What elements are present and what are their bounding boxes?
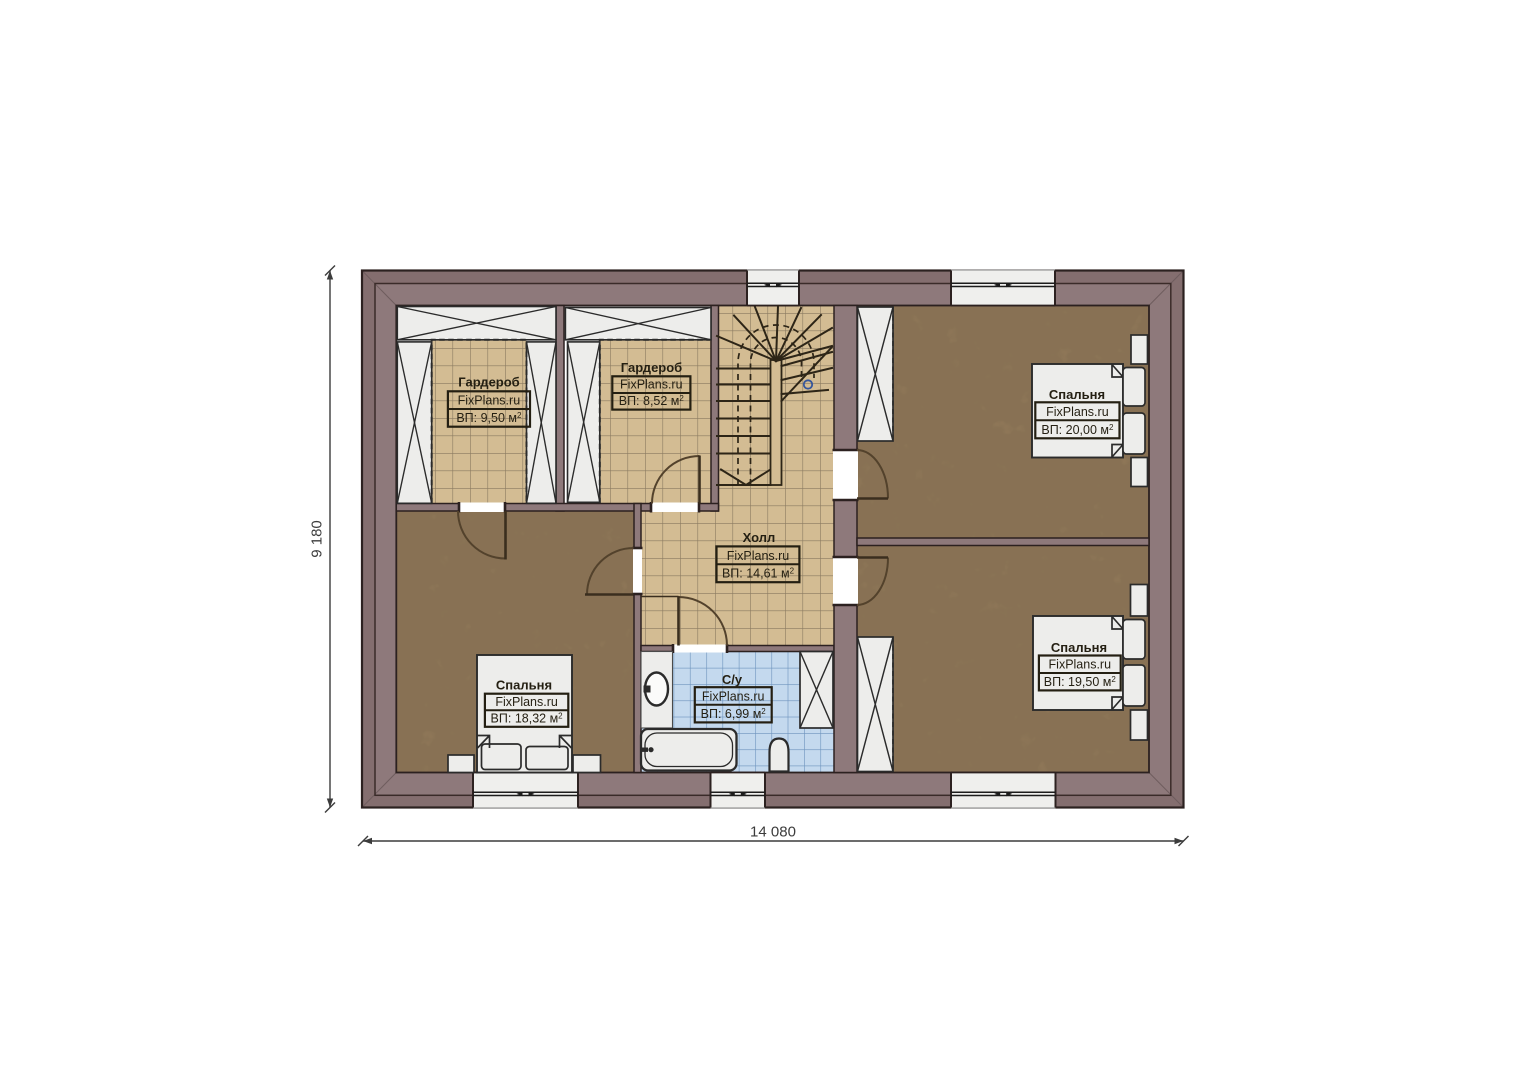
svg-text:Спальня: Спальня (1051, 640, 1107, 655)
svg-text:С/у: С/у (722, 672, 743, 687)
svg-text:ВП: 18,32 м2: ВП: 18,32 м2 (491, 711, 564, 725)
svg-text:Холл: Холл (743, 530, 776, 545)
svg-text:Спальня: Спальня (496, 678, 552, 693)
svg-text:ВП: 20,00 м2: ВП: 20,00 м2 (1041, 423, 1114, 437)
svg-text:FixPlans.ru: FixPlans.ru (727, 549, 790, 563)
svg-text:ВП: 9,50 м2: ВП: 9,50 м2 (456, 411, 522, 425)
svg-text:FixPlans.ru: FixPlans.ru (620, 378, 683, 392)
svg-text:ВП: 6,99 м2: ВП: 6,99 м2 (701, 707, 767, 721)
svg-text:ВП: 19,50 м2: ВП: 19,50 м2 (1044, 675, 1117, 689)
svg-text:FixPlans.ru: FixPlans.ru (702, 689, 765, 703)
svg-text:FixPlans.ru: FixPlans.ru (458, 394, 521, 408)
svg-text:9 180: 9 180 (309, 520, 326, 558)
svg-text:ВП: 14,61 м2: ВП: 14,61 м2 (722, 567, 795, 581)
svg-text:FixPlans.ru: FixPlans.ru (1046, 405, 1109, 419)
svg-text:Гардероб: Гардероб (621, 360, 682, 375)
svg-text:14 080: 14 080 (750, 824, 796, 841)
svg-text:FixPlans.ru: FixPlans.ru (495, 695, 558, 709)
svg-text:ВП: 8,52 м2: ВП: 8,52 м2 (619, 394, 685, 408)
svg-text:Гардероб: Гардероб (458, 375, 519, 390)
svg-text:FixPlans.ru: FixPlans.ru (1049, 658, 1112, 672)
svg-text:Спальня: Спальня (1049, 387, 1105, 402)
